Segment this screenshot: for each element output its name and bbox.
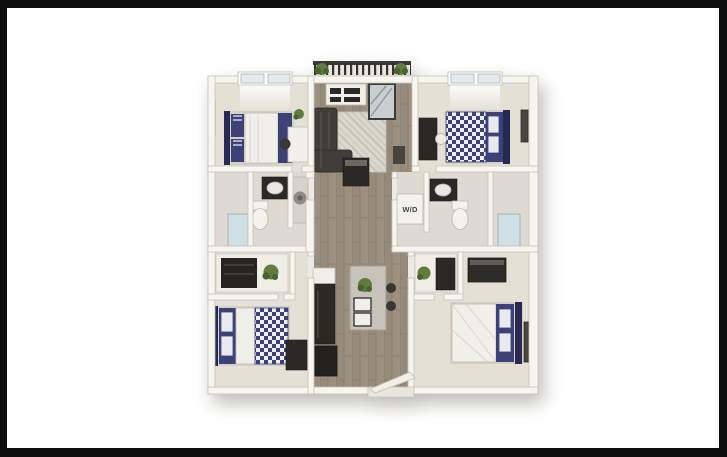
wall-bath-left-divider-2 (288, 172, 293, 228)
wall-br-closet-right (458, 252, 463, 296)
vanity-right (430, 179, 457, 201)
wall-bl-closet-bottom (208, 294, 278, 300)
wall-tl-living (308, 76, 314, 172)
window-glow-left (240, 83, 290, 111)
wall-under-tl-stub (302, 166, 314, 172)
laundry-closet: W/D (397, 194, 423, 224)
window-top-left (238, 72, 292, 85)
wall-under-tl (208, 166, 292, 172)
desk-bottom-left (286, 340, 307, 370)
wall-hall-br-stub (408, 252, 414, 256)
wall-bath-left-divider-1 (248, 172, 253, 250)
wall-bath-right-bottom (392, 246, 538, 252)
closet-desk (436, 258, 455, 290)
wall-hall-left (306, 200, 314, 252)
wall-outer-right (529, 76, 538, 394)
kitchen-cabinets (313, 284, 335, 344)
wall-br-closet-bottom (414, 294, 434, 300)
island-sink-2 (354, 313, 371, 326)
toilet-left (252, 201, 268, 230)
wall-bl-kitchen-stub (308, 252, 314, 256)
wall-br-closet-bottom-stub (444, 294, 463, 300)
window-top-right (448, 72, 502, 85)
balcony (313, 61, 411, 77)
console-table (326, 84, 366, 105)
wall-laundry-left-stub (392, 172, 397, 178)
vanity-left (262, 177, 288, 199)
wall-bl-closet-bottom-stub (284, 294, 295, 300)
window-glow-right (450, 83, 500, 111)
wall-outer-left (208, 76, 215, 394)
shower-glass-right (498, 214, 520, 246)
dresser-bottom-right (468, 258, 506, 282)
kitchen-island (350, 266, 386, 330)
page-frame: { "frame": { "background": "#0e0e0e", "c… (0, 0, 727, 457)
hall-bench (393, 146, 405, 164)
wall-outer-bottom-right (414, 387, 538, 394)
bar-stool-1 (386, 283, 396, 293)
floor-plan-image: W/D (0, 0, 727, 457)
floor-plan: W/D (208, 61, 538, 397)
shower-glass-left (228, 214, 248, 246)
closet-bottom-left (216, 254, 288, 292)
island-sink-1 (354, 298, 371, 311)
refrigerator (313, 346, 337, 376)
wall-laundry-left (392, 200, 397, 252)
washer-dryer-label: W/D (402, 205, 418, 214)
bed-top-right (446, 110, 510, 164)
wall-under-tr-stub (412, 166, 420, 172)
wall-living-tr (412, 76, 418, 172)
wall-bath-right-divider (488, 172, 493, 250)
wall-laundry-right (424, 172, 429, 232)
bed-top-left (224, 111, 294, 165)
wall-under-tr (436, 166, 538, 172)
media-console (343, 158, 369, 186)
wall-bl-closet-right (290, 252, 295, 296)
bed-bottom-left (212, 306, 290, 366)
wall-outer-bottom-left (208, 387, 368, 394)
toilet-right (452, 201, 468, 230)
bed-bottom-right (450, 302, 523, 364)
closet-bottom-right (415, 254, 457, 292)
wall-bath-left-bottom (208, 246, 308, 252)
wall-art-top-right (521, 110, 528, 142)
wall-hall-left-stub (306, 172, 314, 178)
bar-stool-2 (386, 301, 396, 311)
kitchen-counter-white (313, 268, 335, 284)
wall-bl-kitchen (308, 278, 314, 394)
balcony-door (369, 84, 395, 119)
